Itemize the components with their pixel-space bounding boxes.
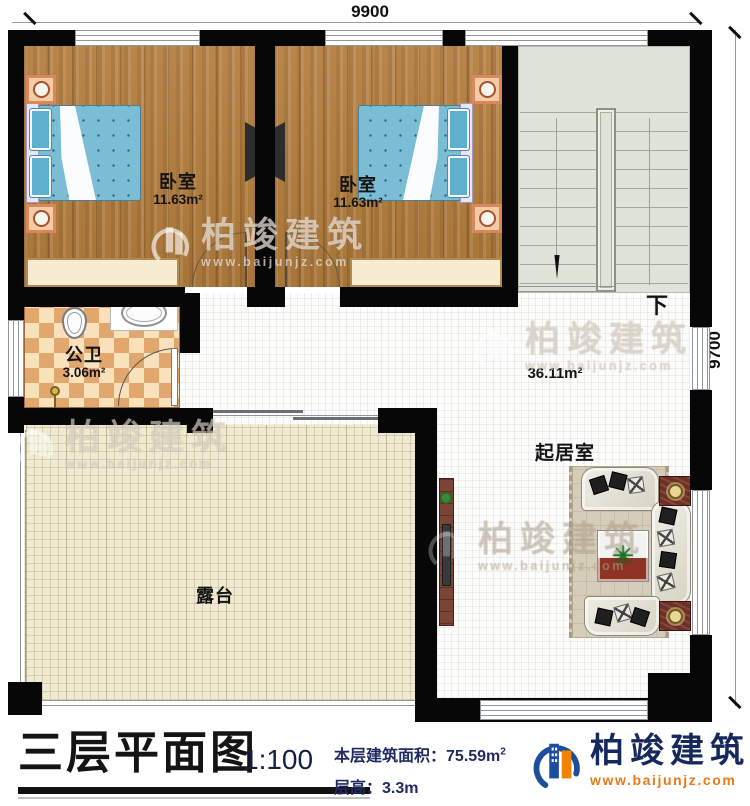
wall	[340, 287, 518, 307]
lamp-icon	[668, 609, 683, 624]
company-url: www.baijunjz.com	[590, 772, 750, 788]
terrace-rail	[20, 700, 424, 701]
nightstand	[472, 75, 502, 104]
wardrobe	[350, 258, 502, 287]
dimension-label-top: 9900	[320, 2, 420, 22]
cushion	[589, 475, 609, 495]
pillow	[448, 156, 469, 197]
tv-living-room	[442, 524, 451, 586]
dimension-line-right	[735, 30, 736, 706]
plant-icon	[440, 492, 452, 504]
cushion	[627, 476, 645, 494]
room-area: 11.63m²	[308, 195, 408, 210]
nightstand	[472, 204, 502, 233]
window	[465, 30, 648, 46]
wall-bedroom-stairs	[502, 46, 518, 307]
sofa-right	[651, 501, 691, 605]
sliding-door-panel	[293, 417, 380, 420]
room-label-bedroom2: 卧室 11.63m²	[308, 175, 408, 210]
door-leaf-bathroom	[171, 348, 178, 406]
cushion	[656, 572, 675, 591]
window	[692, 327, 710, 390]
room-name: 起居室	[505, 443, 625, 464]
floor-area-stat: 本层建筑面积：75.59m2	[334, 742, 506, 766]
terrace-floor	[26, 425, 415, 700]
wall	[200, 30, 325, 46]
floor-area-label: 本层建筑面积：	[334, 748, 446, 765]
floor-height-value: 3.3m	[382, 780, 418, 797]
floorplan-page: 9900 9700 下	[0, 0, 750, 806]
floor-area-sup: 2	[500, 747, 506, 758]
room-label-living: 起居室	[505, 443, 625, 464]
room-name: 公卫	[38, 345, 130, 365]
sliding-door-panel	[213, 410, 303, 413]
room-name: 卧室	[308, 175, 408, 195]
stair-flight-right	[612, 112, 688, 286]
sofa-top	[581, 467, 659, 511]
nightstand	[26, 75, 56, 104]
wardrobe	[26, 258, 179, 287]
company-logo: 柏竣建筑 www.baijunjz.com	[530, 734, 750, 792]
wall	[443, 30, 465, 46]
terrace-rail	[20, 430, 21, 706]
door-leaf-bedroom2	[285, 232, 287, 287]
cushion	[608, 471, 627, 490]
door-leaf-bedroom1	[245, 232, 247, 287]
cushion	[659, 551, 677, 569]
lamp-icon	[33, 210, 50, 227]
floor-area-value: 75.59m	[446, 748, 500, 765]
window	[75, 30, 200, 46]
wall-terrace	[378, 408, 437, 433]
stair-walkline	[556, 118, 557, 256]
wall-bathroom	[180, 293, 200, 353]
plan-scale: 1:100	[243, 744, 313, 776]
stair-landing-edge	[518, 286, 614, 287]
terrace-corner-post	[8, 682, 42, 715]
lamp-icon	[479, 210, 496, 227]
title-block: 三层平面图 1:100 本层建筑面积：75.59m2 层高：3.3m 柏竣建筑	[0, 726, 750, 806]
title-underline	[18, 787, 370, 794]
floor-drain-stem	[54, 395, 56, 409]
company-name: 柏竣建筑	[590, 734, 750, 768]
terrace-rail	[25, 430, 26, 706]
lamp-icon	[33, 81, 50, 98]
coffee-table: ✳	[597, 530, 649, 582]
cushion	[630, 607, 650, 627]
wall	[247, 287, 285, 307]
wall-terrace	[415, 433, 437, 698]
room-label-living-area: 36.11m²	[495, 366, 615, 383]
room-name: 卧室	[128, 172, 228, 192]
wall-bedroom-divider	[255, 46, 275, 307]
cushion	[657, 529, 676, 548]
stair-railing	[596, 108, 616, 292]
window	[8, 320, 24, 397]
company-logo-icon	[530, 734, 582, 792]
room-label-terrace: 露台	[160, 586, 270, 606]
pillow	[448, 109, 469, 150]
floor-height-label: 层高：	[334, 780, 382, 797]
wall-bathroom	[187, 425, 213, 433]
stair-landing-edge	[518, 291, 614, 292]
wall	[8, 287, 185, 307]
wall-corner	[648, 673, 712, 722]
room-area: 3.06m²	[38, 365, 130, 380]
nightstand	[26, 204, 56, 233]
lamp-icon	[479, 81, 496, 98]
stairs-down-label: 下	[646, 288, 668, 320]
window	[325, 30, 443, 46]
side-table	[659, 601, 691, 631]
pillow	[30, 156, 51, 197]
lamp-icon	[668, 484, 683, 499]
window	[480, 700, 648, 720]
room-area: 11.63m²	[128, 192, 228, 207]
wall-bathroom	[8, 408, 213, 425]
room-name: 露台	[160, 586, 270, 606]
room-label-bedroom1: 卧室 11.63m²	[128, 172, 228, 207]
cushion	[595, 608, 614, 627]
sofa-bottom	[584, 596, 660, 636]
floor-height-stat: 层高：3.3m	[334, 774, 418, 798]
plan-title: 三层平面图	[18, 730, 258, 775]
stair-walkline	[649, 118, 650, 285]
plant-icon: ✳	[612, 543, 635, 570]
wall	[690, 390, 712, 490]
pillow	[30, 109, 51, 150]
tv-bedroom2	[274, 122, 285, 182]
terrace-rail	[20, 705, 424, 706]
dimension-line-top	[12, 22, 700, 23]
room-label-bathroom: 公卫 3.06m²	[38, 345, 130, 380]
wall	[8, 30, 24, 320]
wall	[690, 30, 712, 327]
window	[692, 490, 710, 635]
side-table	[659, 476, 691, 506]
cushion	[659, 507, 678, 526]
title-underline-thin	[18, 797, 370, 799]
room-area: 36.11m²	[495, 366, 615, 383]
bed	[26, 103, 141, 203]
sliding-door-track	[213, 415, 380, 416]
